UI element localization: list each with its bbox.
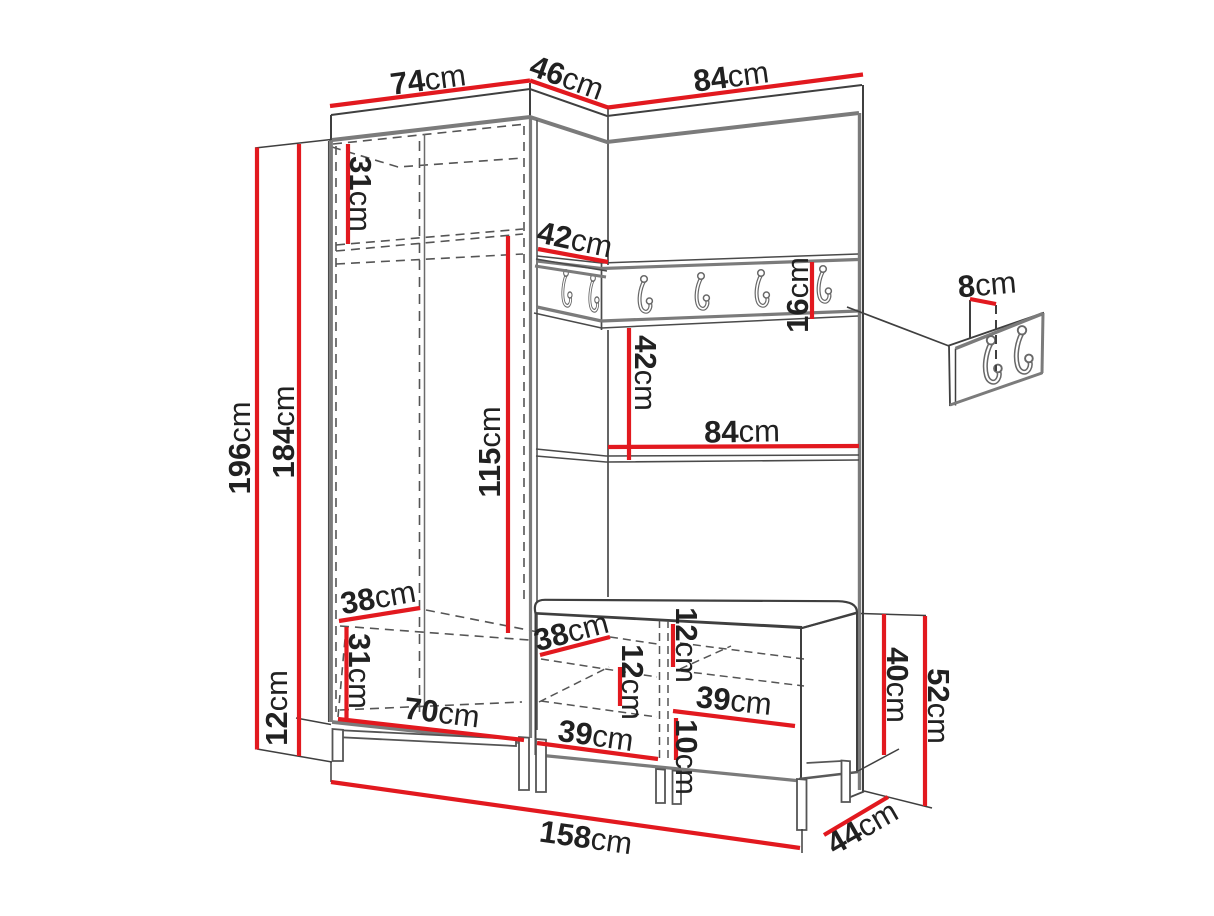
svg-text:8cm: 8cm xyxy=(956,265,1017,305)
svg-text:115cm: 115cm xyxy=(472,406,507,497)
svg-text:40cm: 40cm xyxy=(880,647,915,723)
svg-text:12cm: 12cm xyxy=(259,670,294,746)
svg-text:42cm: 42cm xyxy=(628,335,663,411)
svg-text:184cm: 184cm xyxy=(266,385,301,478)
svg-text:31cm: 31cm xyxy=(343,156,378,232)
svg-text:52cm: 52cm xyxy=(921,668,956,744)
svg-text:16cm: 16cm xyxy=(780,257,815,333)
svg-text:12cm: 12cm xyxy=(669,607,704,683)
svg-text:31cm: 31cm xyxy=(342,633,377,709)
svg-text:12cm: 12cm xyxy=(615,644,650,720)
svg-text:196cm: 196cm xyxy=(222,401,257,494)
svg-text:84cm: 84cm xyxy=(704,413,780,449)
svg-text:10cm: 10cm xyxy=(669,719,704,795)
